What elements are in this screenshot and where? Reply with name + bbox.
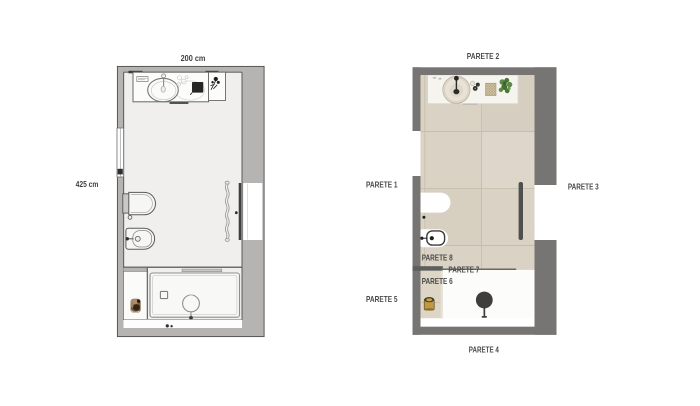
svg-text:PARETE 2: PARETE 2 bbox=[467, 52, 500, 61]
svg-text:PARETE 7: PARETE 7 bbox=[448, 265, 479, 274]
svg-text:425 cm: 425 cm bbox=[76, 180, 99, 189]
svg-text:PARETE 6: PARETE 6 bbox=[422, 277, 453, 286]
svg-text:PARETE 3: PARETE 3 bbox=[568, 183, 599, 192]
svg-text:PARETE 5: PARETE 5 bbox=[366, 295, 398, 304]
svg-text:200 cm: 200 cm bbox=[181, 54, 206, 63]
svg-text:PARETE 8: PARETE 8 bbox=[422, 254, 453, 263]
svg-text:PARETE 4: PARETE 4 bbox=[469, 345, 499, 354]
svg-text:PARETE 1: PARETE 1 bbox=[366, 181, 398, 190]
